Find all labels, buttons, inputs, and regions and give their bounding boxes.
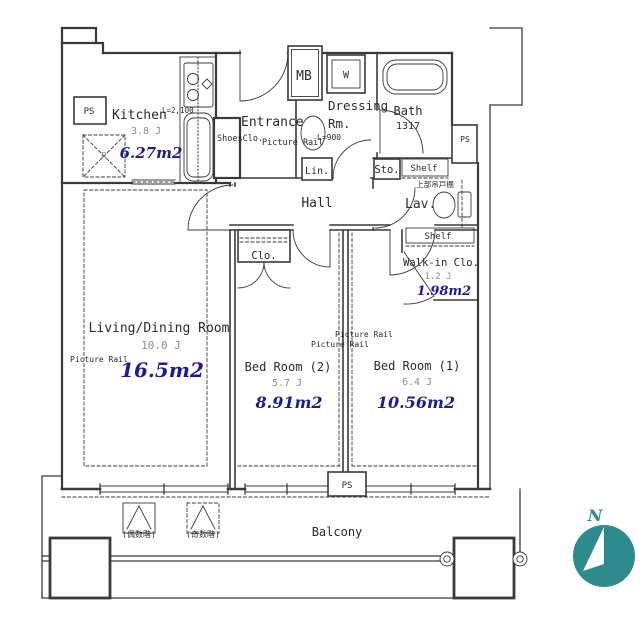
walkin-label: Walk-in Clo. [403, 257, 479, 269]
entrance-label: Entrance [241, 115, 304, 130]
hatch-even-label: (偶数階) [122, 529, 156, 539]
floor-plan-drawing: PS Kitchen L=2,100 3.8 J 6.27m2 R Entran… [0, 0, 644, 635]
labels: PS Kitchen L=2,100 3.8 J 6.27m2 R Entran… [70, 69, 604, 539]
bath-size: 1317 [396, 121, 420, 132]
ps-bottom-label: PS [342, 481, 353, 491]
linen-label: Lin. [305, 166, 329, 177]
bed2-tatami: 5.7 J [272, 378, 302, 389]
bath-label: Bath [394, 104, 423, 118]
meter-box-label: MB [296, 69, 312, 84]
fridge-label: R [101, 151, 108, 162]
kitchen-counter [180, 57, 216, 183]
bed1-label: Bed Room (1) [374, 359, 461, 373]
shoes-closet-label: ShoesClo. [217, 134, 263, 144]
bed1-tatami: 6.4 J [402, 377, 432, 388]
entrance-picture-rail-label: Picture Rail [262, 138, 323, 148]
living-area: 16.5m2 [120, 358, 204, 382]
bed2-picture-rail-2: Picture Rail [311, 340, 369, 349]
hall-label: Hall [301, 196, 332, 211]
ps-left-label: PS [84, 107, 95, 117]
dressing-label-2: Rm. [328, 116, 351, 131]
floor-plan-page: PS Kitchen L=2,100 3.8 J 6.27m2 R Entran… [0, 0, 644, 635]
column-left [50, 538, 110, 598]
bed2-picture-rail-1: Picture Rail [335, 330, 393, 339]
bed2-label: Bed Room (2) [245, 360, 332, 374]
balcony-label: Balcony [312, 525, 363, 539]
closet-label: Clo. [251, 250, 276, 262]
evacuation-hatch-even [123, 503, 155, 533]
balcony-structure [42, 476, 527, 598]
walkin-area: 1.98m2 [417, 284, 471, 299]
kitchen-tatami: 3.8 J [131, 126, 161, 137]
kitchen-rail-note: L=2,100 [162, 106, 194, 115]
toilet [433, 192, 471, 218]
kitchen-label: Kitchen [112, 108, 167, 123]
column-right [454, 538, 514, 598]
pipe-shaft-right [452, 125, 477, 163]
dressing-label-1: Dressing [328, 98, 388, 113]
kitchen-area: 6.27m2 [120, 144, 183, 162]
evacuation-hatch-odd [187, 503, 219, 533]
compass [573, 525, 635, 587]
ps-right-label: PS [460, 135, 470, 144]
living-label: Living/Dining Room [89, 321, 230, 336]
storage-label: Sto. [374, 164, 399, 176]
windows [100, 180, 455, 494]
upper-cabinet-label: 上部吊戸棚 [416, 179, 454, 189]
north-label: N [587, 506, 604, 525]
shelf-lav-label: Shelf [410, 164, 437, 174]
walkin-tatami: 1.2 J [424, 272, 451, 282]
hatch-odd-label: (奇数階) [186, 529, 220, 539]
living-tatami: 10.0 J [141, 339, 181, 352]
bathtub [383, 60, 447, 94]
entrance-rail-length: L=900 [317, 133, 341, 142]
lavatory-label: Lav. [405, 197, 436, 212]
bed1-area: 10.56m2 [377, 393, 455, 412]
shoes-closet-box [214, 118, 240, 178]
washer-label: W [343, 70, 350, 81]
walkin-shelf-label: Shelf [424, 232, 451, 242]
bed2-area: 8.91m2 [254, 393, 322, 412]
